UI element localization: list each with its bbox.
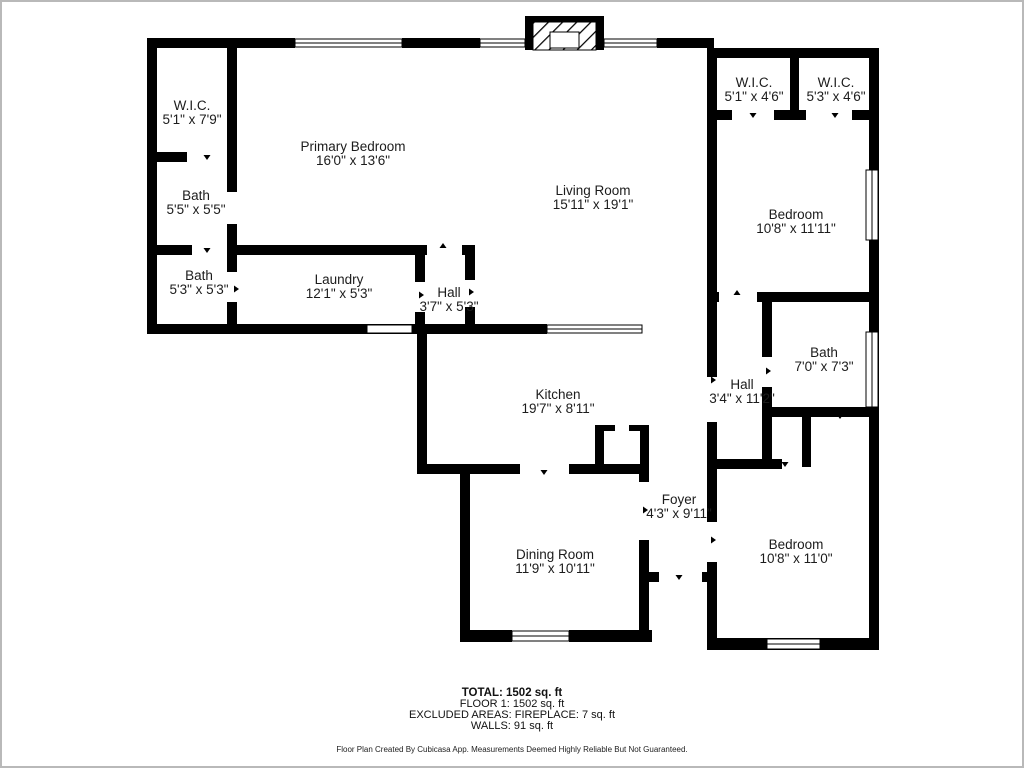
room-label: Bedroom bbox=[769, 537, 824, 552]
room-label: Hall bbox=[730, 377, 753, 392]
door-marker-icon bbox=[676, 575, 683, 580]
room-label: Bath bbox=[810, 345, 838, 360]
door-marker-icon bbox=[711, 537, 716, 544]
door-marker-icon bbox=[440, 243, 447, 248]
room-label: 5'3" x 4'6" bbox=[806, 89, 865, 104]
door-marker-icon bbox=[419, 292, 424, 299]
room-label: 3'4" x 11'2" bbox=[709, 391, 775, 406]
door-marker-icon bbox=[734, 290, 741, 295]
door-marker-icon bbox=[204, 248, 211, 253]
door-markers bbox=[204, 113, 844, 580]
exterior-door bbox=[367, 325, 412, 333]
room-label: 5'1" x 4'6" bbox=[724, 89, 783, 104]
summary-walls: WALLS: 91 sq. ft bbox=[2, 721, 1022, 732]
room-label: Laundry bbox=[315, 272, 364, 287]
room-label: Primary Bedroom bbox=[300, 139, 405, 154]
door-marker-icon bbox=[234, 286, 239, 293]
room-label: 19'7" x 8'11" bbox=[521, 401, 594, 416]
room-label: 5'5" x 5'5" bbox=[166, 202, 225, 217]
room-label: W.I.C. bbox=[736, 75, 773, 90]
room-label: Dining Room bbox=[516, 547, 594, 562]
room-label: W.I.C. bbox=[174, 98, 211, 113]
fireplace-icon bbox=[525, 16, 604, 50]
room-label: Bath bbox=[182, 188, 210, 203]
room-label: 5'3" x 5'3" bbox=[169, 282, 228, 297]
room-label: W.I.C. bbox=[818, 75, 855, 90]
room-label: 15'11" x 19'1" bbox=[553, 197, 634, 212]
room-label: 7'0" x 7'3" bbox=[794, 359, 853, 374]
room-label: Foyer bbox=[662, 492, 697, 507]
room-label: Living Room bbox=[555, 183, 630, 198]
disclaimer: Floor Plan Created By Cubicasa App. Meas… bbox=[2, 745, 1022, 754]
door-marker-icon bbox=[711, 377, 716, 384]
room-label: 10'8" x 11'0" bbox=[759, 551, 832, 566]
door-marker-icon bbox=[750, 113, 757, 118]
room-label: Bedroom bbox=[769, 207, 824, 222]
door-marker-icon bbox=[766, 368, 771, 375]
area-summary: TOTAL: 1502 sq. ft FLOOR 1: 1502 sq. ft … bbox=[2, 688, 1022, 732]
room-label: Bath bbox=[185, 268, 213, 283]
room-label: 16'0" x 13'6" bbox=[316, 153, 390, 168]
room-label: 5'1" x 7'9" bbox=[162, 112, 221, 127]
room-label: 3'7" x 5'3" bbox=[419, 299, 478, 314]
floor-plan-drawing: W.I.C.5'1" x 7'9"Primary Bedroom16'0" x … bbox=[2, 2, 1024, 768]
room-label: 11'9" x 10'11" bbox=[515, 561, 595, 576]
door-marker-icon bbox=[469, 289, 474, 296]
room-label: 10'8" x 11'11" bbox=[756, 221, 836, 236]
room-label: 4'3" x 9'11" bbox=[646, 506, 712, 521]
room-label: Hall bbox=[437, 285, 460, 300]
door-marker-icon bbox=[541, 470, 548, 475]
room-label: 12'1" x 5'3" bbox=[306, 286, 373, 301]
door-marker-icon bbox=[832, 113, 839, 118]
floor-plan-page: W.I.C.5'1" x 7'9"Primary Bedroom16'0" x … bbox=[0, 0, 1024, 768]
door-marker-icon bbox=[204, 155, 211, 160]
room-label: Kitchen bbox=[535, 387, 580, 402]
door-marker-icon bbox=[782, 462, 789, 467]
